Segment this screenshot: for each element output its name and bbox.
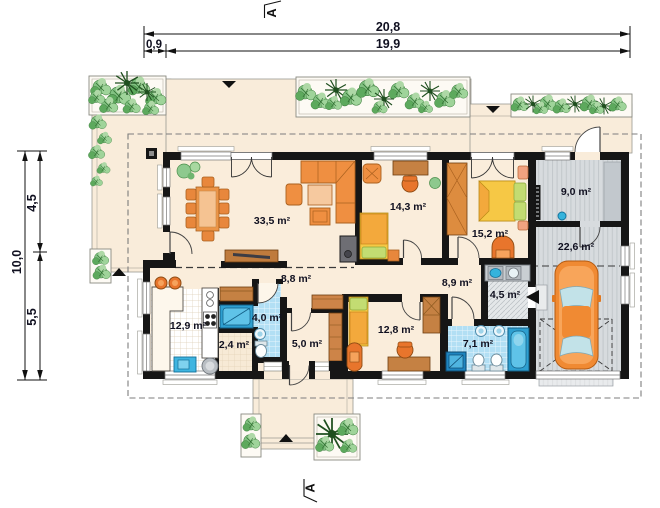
svg-text:4,5: 4,5 [25, 194, 39, 211]
svg-text:4,5 m²: 4,5 m² [490, 289, 521, 301]
svg-text:A: A [265, 8, 279, 17]
svg-text:15,2 m²: 15,2 m² [472, 228, 509, 240]
svg-text:0,9: 0,9 [146, 39, 162, 51]
svg-text:19,9: 19,9 [376, 37, 400, 51]
svg-text:33,5 m²: 33,5 m² [254, 215, 291, 227]
svg-text:5,0 m²: 5,0 m² [292, 338, 323, 350]
svg-text:2,4 m²: 2,4 m² [219, 339, 250, 351]
svg-text:12,9 m²: 12,9 m² [170, 320, 207, 332]
svg-text:8,8 m²: 8,8 m² [281, 273, 312, 285]
svg-text:22,6 m²: 22,6 m² [558, 241, 595, 253]
svg-text:A: A [304, 483, 318, 492]
svg-text:5,5: 5,5 [25, 308, 39, 325]
svg-text:7,1 m²: 7,1 m² [463, 338, 494, 350]
svg-text:10,0: 10,0 [10, 250, 24, 274]
svg-text:20,8: 20,8 [376, 20, 400, 34]
svg-text:8,9 m²: 8,9 m² [442, 277, 473, 289]
svg-text:9,0 m²: 9,0 m² [561, 186, 592, 198]
svg-text:14,3 m²: 14,3 m² [390, 201, 427, 213]
svg-text:12,8 m²: 12,8 m² [378, 324, 415, 336]
svg-text:4,0 m²: 4,0 m² [252, 312, 283, 324]
